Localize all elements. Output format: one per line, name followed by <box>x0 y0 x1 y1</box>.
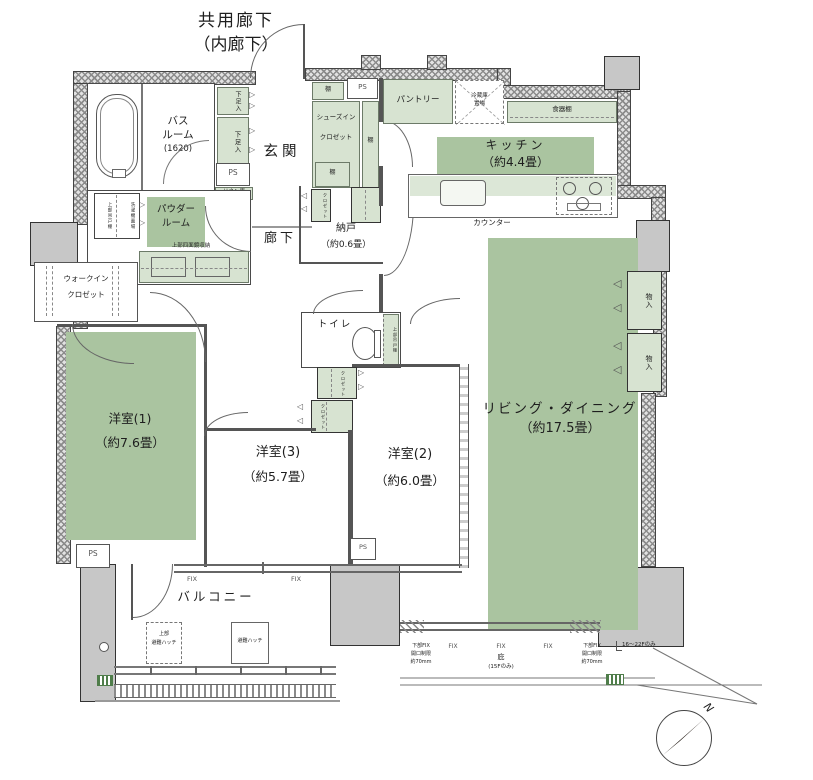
rail-post <box>195 666 197 675</box>
pantry-label: パントリー <box>383 96 453 106</box>
shelf-bottom-label: 棚 <box>315 170 350 177</box>
entrance-door-arc <box>250 24 304 78</box>
fold-door-icon: ▷ <box>358 383 364 391</box>
closet-1-rail <box>331 369 332 397</box>
powder-label-2: ルーム <box>147 219 205 230</box>
fold-door-icon: ▷ <box>139 201 145 209</box>
kitchen-sink <box>440 180 486 206</box>
balcony-rail-2 <box>114 673 336 675</box>
fold-door-icon: ◁ <box>301 192 307 200</box>
bedroom3-door-arc <box>204 412 248 436</box>
counter-label: カウンター <box>460 219 524 227</box>
shoes-in-closet-label-2: クロゼット <box>311 134 361 141</box>
pipe-space-top-label: PS <box>347 84 378 92</box>
entrance-label: 玄関 <box>258 144 306 160</box>
bedroom1-door-arc <box>150 292 206 362</box>
wic-label-1: ウォークイン <box>34 275 138 283</box>
bedroom2-wall-top <box>352 364 462 367</box>
pipe-space-bottom-left-label: PS <box>76 550 110 558</box>
upper-hatch-label-1: 上部 <box>146 632 182 638</box>
balcony-ground-line <box>95 700 340 702</box>
wic-label-2: クロゼット <box>34 291 138 299</box>
window-mullion <box>262 562 264 574</box>
toilet-door-arc <box>313 290 363 314</box>
entrance-step-line <box>252 226 312 228</box>
rail-post <box>150 666 152 675</box>
window-wall-line-1 <box>174 564 462 566</box>
eaves-perspective-lines <box>392 636 813 710</box>
burner-icon <box>589 182 602 195</box>
upper-cabinet-label: 上部吊戸棚 <box>98 196 112 236</box>
grating-icon <box>97 675 113 686</box>
fold-door-icon: ◁ <box>613 364 621 375</box>
entrance-door-leaf <box>303 24 305 79</box>
shoe-cabinet-1-label: 下足入 <box>226 89 240 113</box>
window-wall-line-2 <box>174 571 462 573</box>
common-corridor-label-1: 共用廊下 <box>180 12 292 31</box>
washer-cabinet-divider <box>116 195 117 237</box>
fix-label-balcony-2: FIX <box>282 576 310 583</box>
toilet-tank <box>374 330 381 358</box>
closet-2-rail <box>326 402 327 431</box>
fridge-label-2: 置場 <box>455 101 504 107</box>
kitchen-door-arc <box>383 120 413 167</box>
shoes-in-closet-label-1: シューズイン <box>311 114 361 121</box>
corridor-wall-3 <box>379 274 383 314</box>
window-hatch-right <box>570 620 601 633</box>
storage-label-2: （約0.6畳） <box>308 240 384 250</box>
balcony-rail-1 <box>114 666 336 668</box>
stove-grill <box>567 203 601 211</box>
storage-wall-bottom <box>299 262 383 264</box>
balcony-door-leaf <box>131 564 133 620</box>
compass-needle-icon <box>656 710 712 766</box>
storage-label-1: 納戸 <box>316 223 376 234</box>
bedroom1-label-1: 洋室(1) <box>72 412 188 426</box>
vanity-sink-2 <box>195 257 230 277</box>
rail-post <box>240 666 242 675</box>
fold-door-icon: ◁ <box>297 417 303 425</box>
shoe-cabinet-2-label: 下足入 <box>226 124 240 160</box>
wall-bump-1 <box>362 56 380 69</box>
shelf-side-label: 棚 <box>362 138 379 145</box>
column-left <box>30 222 78 266</box>
floor-plan: 共用廊下 （内廊下） バス ルーム (1620) 下足入 下足入 ▷ ▷ ▷ ▷… <box>0 0 813 780</box>
fold-door-icon: ◁ <box>613 278 621 289</box>
hatch-label: 避難ハッチ <box>231 639 269 645</box>
storage-in-2-label: 物入 <box>638 345 652 381</box>
bedroom3-label-2: （約5.7畳） <box>214 470 342 484</box>
pipe-space-mid-label: PS <box>350 544 376 551</box>
storage-closet-label: クロゼット <box>315 191 327 221</box>
fold-door-icon: ◁ <box>613 340 621 351</box>
storage-shelf-rail <box>365 190 366 220</box>
wall-right-c <box>642 394 655 566</box>
fold-door-icon: ◁ <box>297 403 303 411</box>
powder-label-1: パウダー <box>147 205 205 216</box>
bathroom-inner-wall <box>141 84 143 192</box>
living-partition-wall <box>459 364 469 568</box>
bedroom2-label-2: （約6.0畳） <box>346 474 474 488</box>
bedroom3-label-1: 洋室(3) <box>220 446 336 461</box>
mirror-storage-label: 上部四面鏡収納 <box>156 243 226 249</box>
kitchen-label-1: キッチン <box>437 139 594 152</box>
kitchen-label-2: （約4.4畳） <box>437 156 594 169</box>
pipe-space-entrance-label: PS <box>216 169 250 177</box>
balcony-label: バルコニー <box>158 590 274 604</box>
vanity-dash <box>141 268 247 269</box>
bedroom1-label-2: （約7.6畳） <box>66 436 194 450</box>
upper-hatch-label-2: 避難ハッチ <box>146 641 182 647</box>
fold-door-icon: ▷ <box>249 146 255 154</box>
fridge-label-1: 冷蔵庫 <box>455 93 504 99</box>
washer-space-label: 洗濯機置場 <box>121 196 135 236</box>
burner-icon <box>563 182 576 195</box>
living-label-1: リビング・ダイニング <box>448 402 672 417</box>
bedroom2-label-1: 洋室(2) <box>352 448 468 463</box>
fold-door-icon: ◁ <box>613 302 621 313</box>
rail-post <box>320 666 322 675</box>
bathroom-label-1: バス <box>146 116 210 128</box>
toilet-upper-cabinet-label: 上部吊戸棚 <box>385 316 397 364</box>
column-right <box>636 220 670 272</box>
column-top-right <box>604 56 640 90</box>
fold-door-icon: ▷ <box>249 127 255 135</box>
dish-shelf-rail <box>510 117 614 118</box>
storage-shelf-box <box>351 187 381 223</box>
shelf-top-label: 棚 <box>312 87 344 94</box>
living-label-2: （約17.5畳） <box>468 422 652 437</box>
bathtub-inner <box>100 98 134 174</box>
grating-icon <box>606 674 624 685</box>
fold-door-icon: ▷ <box>249 91 255 99</box>
window-hatch-left <box>400 620 424 633</box>
bedroom2-door-arc <box>410 298 460 324</box>
fix-label-balcony-1: FIX <box>178 576 206 583</box>
column-balcony-mid <box>330 564 400 646</box>
rail-post <box>285 666 287 675</box>
balcony-edge-hatch <box>114 684 336 698</box>
fold-door-icon: ▷ <box>139 219 145 227</box>
fold-door-icon: ▷ <box>358 369 364 377</box>
wall-right-step <box>618 186 665 198</box>
toilet-label: トイレ <box>310 320 360 331</box>
drain-icon <box>99 642 109 652</box>
storage-in-1-label: 物入 <box>638 283 652 319</box>
bathtub-faucet <box>112 169 126 178</box>
closet-1-label: クロゼット <box>334 369 345 398</box>
vanity-sink-1 <box>151 257 186 277</box>
wall-kitchen-right <box>618 92 630 193</box>
fold-door-icon: ▷ <box>249 102 255 110</box>
corridor-wall-2 <box>379 166 383 206</box>
wall-bump-2 <box>428 56 446 69</box>
fold-door-icon: ◁ <box>301 205 307 213</box>
dish-shelf-label: 食器棚 <box>507 106 617 113</box>
wall-left-upper <box>74 84 87 224</box>
